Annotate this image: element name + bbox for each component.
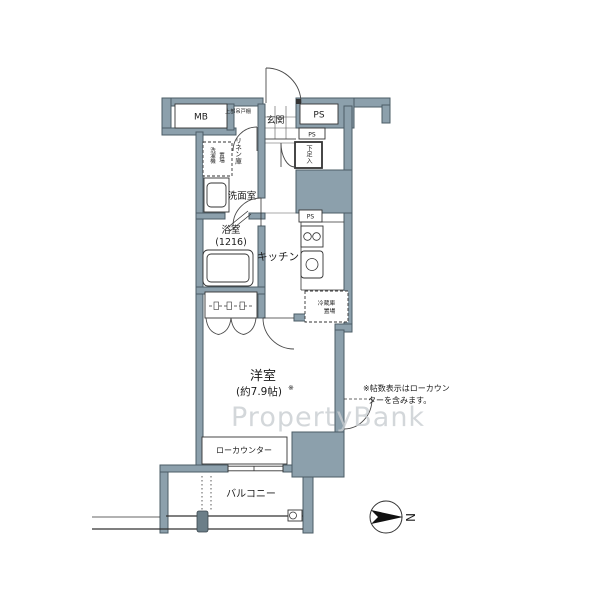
room-door-arc — [263, 318, 294, 349]
balcony-label: バルコニー — [226, 488, 276, 500]
low-counter-label: ローカウンター — [216, 446, 272, 455]
compass: N — [370, 501, 417, 533]
hanger-mark — [214, 302, 219, 310]
bathtub-inner — [207, 254, 249, 282]
vanity-sink-bowl — [207, 183, 226, 207]
pipe-space-top-label: PS — [313, 111, 324, 121]
washroom-label: 洗面室 — [228, 190, 257, 202]
closet-bifold-doors — [206, 318, 256, 335]
footnote-line-1: ※帖数表示はローカウン — [363, 383, 450, 393]
hanger-mark — [227, 302, 232, 310]
balcony-post — [197, 511, 208, 532]
shoe-cabinet-label: 下足入 — [305, 145, 312, 164]
door-hinge — [296, 99, 301, 104]
pipe-space-kitchen-label: PS — [307, 214, 315, 221]
balcony-area: バルコニー — [92, 476, 303, 532]
bathroom-size-label: (1216) — [215, 237, 247, 248]
room-size-label: (約7.9帖) — [236, 385, 282, 398]
kitchen-area: キッチン 冷蔵庫 置場 — [257, 222, 348, 322]
room-label: 洋室 — [250, 368, 276, 384]
balcony-drain — [288, 510, 302, 521]
balcony-window — [228, 465, 283, 472]
bathroom-area: 浴室 (1216) — [203, 211, 253, 286]
room-size-note-mark: ※ — [288, 384, 294, 392]
upper-cabinet-label: 上部吊戸棚 — [225, 107, 251, 115]
hanger-mark — [240, 302, 245, 310]
meter-box-label: MB — [194, 113, 208, 123]
entrance-label: 玄関 — [266, 114, 284, 126]
kitchen-sink — [301, 251, 323, 278]
pipe-space-mid-label: PS — [308, 132, 316, 139]
footnote: ※帖数表示はローカウン ターを含みます。 — [363, 383, 450, 405]
floor-plan: 玄関 MB PS PS PS 下足入 上部吊戸棚 リネン庫 洗濯機 置場 洗面室… — [0, 0, 600, 600]
washer-space-label-2: 置場 — [218, 152, 225, 165]
stove — [301, 226, 323, 247]
washer-space-label-1: 洗濯機 — [209, 146, 216, 165]
fridge-space-label-1: 冷蔵庫 — [318, 299, 336, 307]
floor-plan-page: 玄関 MB PS PS PS 下足入 上部吊戸棚 リネン庫 洗濯機 置場 洗面室… — [0, 0, 600, 600]
compass-arrow — [371, 510, 403, 524]
footnote-line-2: ターを含みます。 — [368, 395, 431, 405]
watermark: PropertyBank — [231, 402, 425, 433]
shoe-cabinet-door-arc — [281, 143, 295, 167]
walls — [160, 98, 390, 533]
compass-north-label: N — [403, 513, 417, 522]
fridge-space-label-2: 置場 — [324, 307, 336, 315]
kitchen-label: キッチン — [257, 251, 299, 263]
